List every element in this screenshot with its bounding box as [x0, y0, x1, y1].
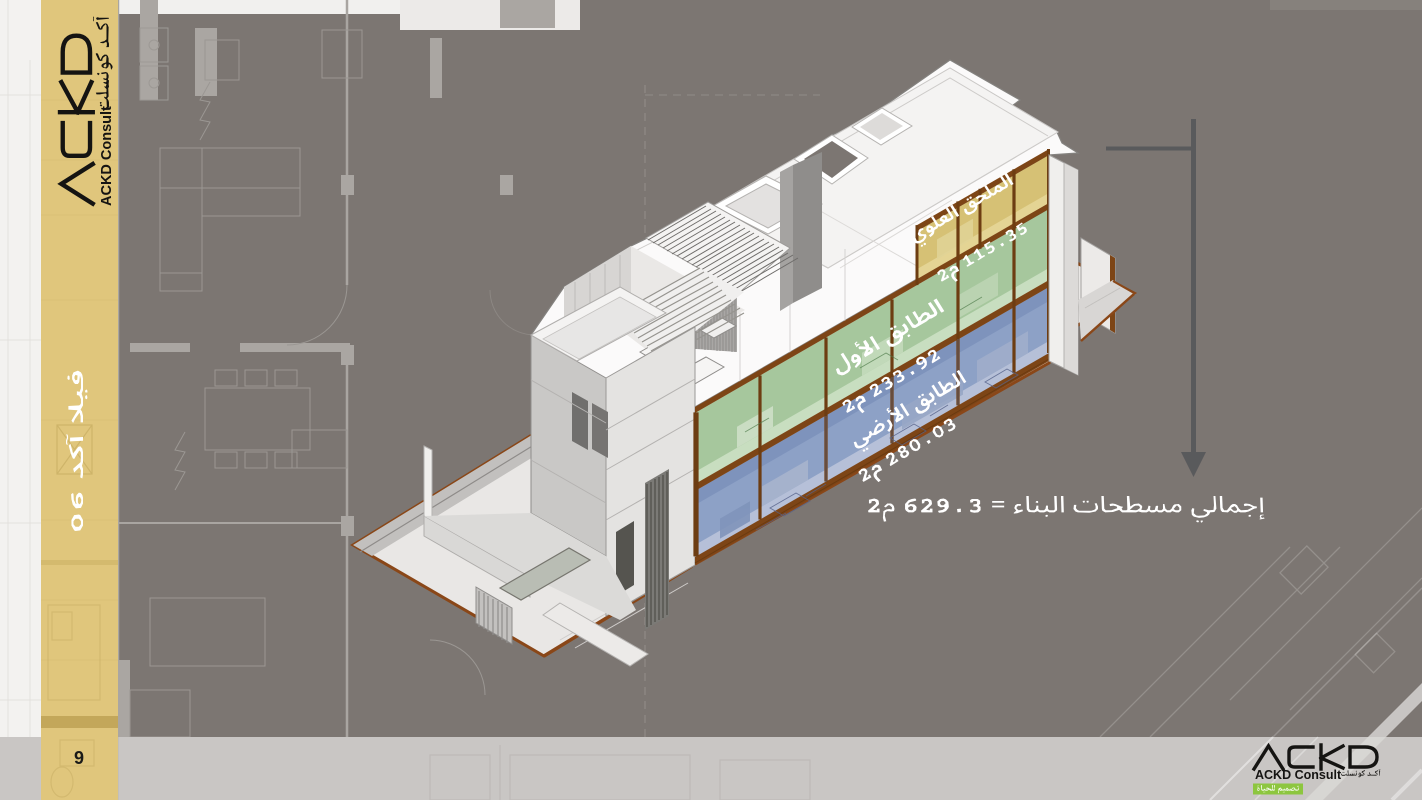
svg-text:ACKD Consult: ACKD Consult — [99, 106, 115, 206]
svg-text:ACKD Consult: ACKD Consult — [1255, 768, 1342, 782]
svg-text:9: 9 — [74, 748, 84, 768]
